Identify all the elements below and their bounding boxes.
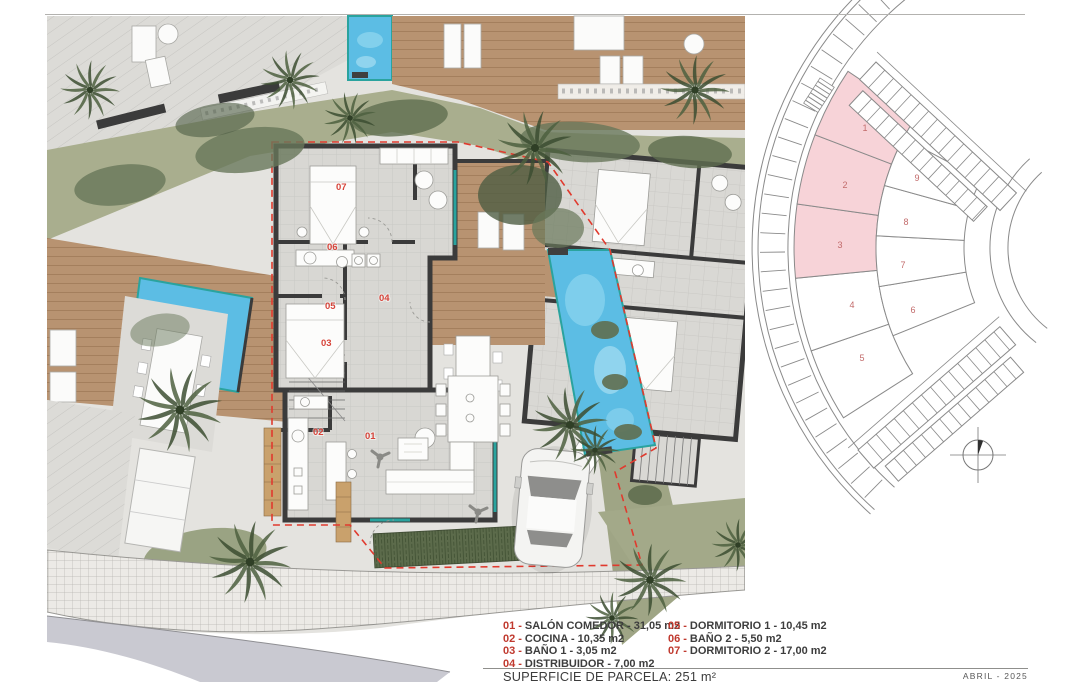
plot-fan bbox=[752, 0, 1047, 514]
location-diagram: 1 2 3 4 5 6 7 8 9 bbox=[752, 0, 1047, 514]
legend-item-desc: COCINA - 10,35 m2 bbox=[525, 633, 624, 645]
legend-column-2: 05-DORMITORIO 1 - 10,45 m2 06-BAÑO 2 - 5… bbox=[668, 620, 827, 670]
room-label-07: 07 bbox=[336, 182, 347, 193]
plot-number-1: 1 bbox=[862, 123, 867, 133]
legend-separator: - bbox=[515, 645, 525, 657]
plot-number-9: 9 bbox=[914, 173, 919, 183]
neighbour-pool-top bbox=[348, 16, 392, 80]
legend-item-desc: DISTRIBUIDOR - 7,00 m2 bbox=[525, 658, 655, 670]
date-label: ABRIL - 2025 bbox=[903, 671, 1028, 681]
legend-item: 03-BAÑO 1 - 3,05 m2 bbox=[503, 645, 666, 658]
room-label-06: 06 bbox=[327, 242, 338, 253]
plot-number-5: 5 bbox=[859, 353, 864, 363]
legend-separator: - bbox=[680, 633, 690, 645]
plot-number-8: 8 bbox=[903, 217, 908, 227]
legend-item-number: 05 bbox=[668, 620, 680, 632]
legend-item-desc: DORMITORIO 1 - 10,45 m2 bbox=[690, 620, 827, 632]
parcel-area-label: SUPERFICIE DE PARCELA: 251 m² bbox=[503, 669, 716, 682]
hedge bbox=[373, 526, 523, 568]
room-label-04: 04 bbox=[379, 293, 390, 304]
legend-item-number: 02 bbox=[503, 633, 515, 645]
room-label-03: 03 bbox=[321, 338, 332, 349]
north-indicator-icon bbox=[950, 427, 1006, 483]
legend-separator: - bbox=[515, 620, 525, 632]
legend-separator: - bbox=[680, 620, 690, 632]
legend-separator: - bbox=[515, 658, 525, 670]
legend-item-desc: BAÑO 2 - 5,50 m2 bbox=[690, 633, 782, 645]
legend-item: 05-DORMITORIO 1 - 10,45 m2 bbox=[668, 620, 827, 633]
legend-item: 02-COCINA - 10,35 m2 bbox=[503, 633, 666, 646]
room-legend: 01-SALÓN COMEDOR - 31,05 m2 02-COCINA - … bbox=[503, 620, 827, 670]
legend-item: 01-SALÓN COMEDOR - 31,05 m2 bbox=[503, 620, 666, 633]
legend-item-number: 01 bbox=[503, 620, 515, 632]
plan-canvas: 1 2 3 4 5 6 7 8 9 07 06 05 04 03 02 bbox=[0, 0, 1070, 682]
legend-separator: - bbox=[515, 633, 525, 645]
legend-item: 06-BAÑO 2 - 5,50 m2 bbox=[668, 633, 827, 646]
room-label-01: 01 bbox=[365, 431, 376, 442]
room-label-05: 05 bbox=[325, 301, 336, 312]
drawing-sheet: 1 2 3 4 5 6 7 8 9 07 06 05 04 03 02 bbox=[0, 0, 1070, 682]
legend-item-number: 06 bbox=[668, 633, 680, 645]
plot-number-3: 3 bbox=[837, 240, 842, 250]
plot-number-7: 7 bbox=[900, 260, 905, 270]
room-label-02: 02 bbox=[313, 427, 324, 438]
legend-separator: - bbox=[680, 645, 690, 657]
legend-item-desc: SALÓN COMEDOR - 31,05 m2 bbox=[525, 620, 680, 632]
sheet-top-rule bbox=[45, 14, 1025, 15]
plot-number-2: 2 bbox=[842, 180, 847, 190]
legend-item: 07-DORMITORIO 2 - 17,00 m2 bbox=[668, 645, 827, 658]
plot-number-4: 4 bbox=[849, 300, 854, 310]
legend-item-desc: DORMITORIO 2 - 17,00 m2 bbox=[690, 645, 827, 657]
legend-item-number: 07 bbox=[668, 645, 680, 657]
legend-column-1: 01-SALÓN COMEDOR - 31,05 m2 02-COCINA - … bbox=[503, 620, 666, 670]
legend-item-number: 04 bbox=[503, 658, 515, 670]
legend-item-number: 03 bbox=[503, 645, 515, 657]
plot-number-6: 6 bbox=[910, 305, 915, 315]
legend-item-desc: BAÑO 1 - 3,05 m2 bbox=[525, 645, 617, 657]
rendered-site-plan bbox=[47, 16, 765, 682]
